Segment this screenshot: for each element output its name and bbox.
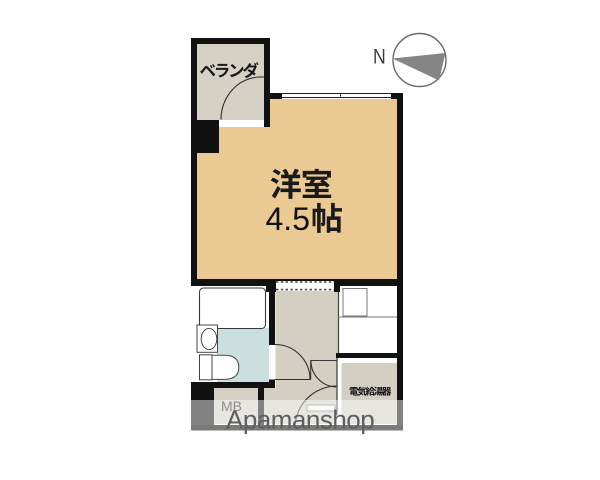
svg-text:N: N bbox=[373, 45, 386, 69]
svg-text:Apamanshop: Apamanshop bbox=[226, 405, 374, 435]
svg-text:4.5: 4.5 bbox=[266, 201, 310, 237]
